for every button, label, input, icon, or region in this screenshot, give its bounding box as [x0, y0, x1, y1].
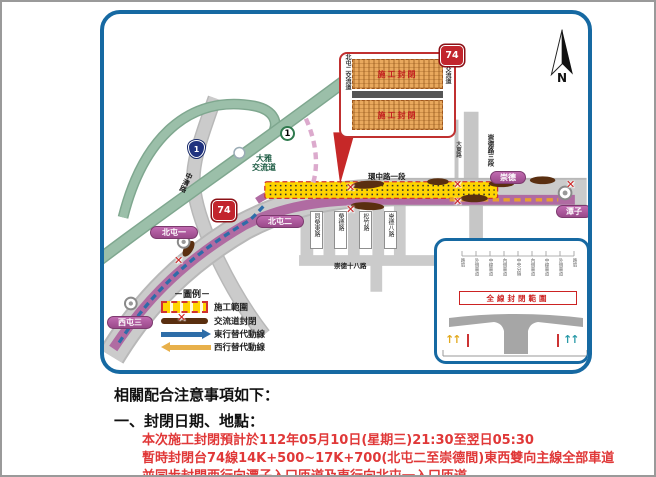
route-74-shield-icon: 74 — [212, 200, 236, 221]
daya-junction-marker — [234, 148, 245, 159]
map-canvas: N 74 北屯二交流道 崇德交流道 施工封閉 施工封閉 74 1 1 北屯一 北… — [100, 10, 592, 374]
pill-beitun1: 北屯一 — [150, 226, 198, 239]
pill-beitun2: 北屯二 — [256, 215, 304, 228]
callout-right-road-label: 崇德交流道 — [443, 54, 452, 136]
lane-label: 外側車道 — [555, 258, 565, 290]
closure-section-line: 暫時封閉台74線14K+500~17K+700(北屯二至崇德間)東西雙向主線全部… — [142, 447, 614, 466]
lane-label: 中線車道 — [485, 258, 495, 290]
closed-lane-bottom: 施工封閉 — [352, 100, 443, 130]
label-daya-interchange: 大雅 交流道 — [252, 154, 276, 172]
pill-tanzi: 潭子 — [556, 205, 592, 218]
lane-label: 中線車道 — [541, 258, 551, 290]
street-label-box: 崇德八路 — [384, 211, 397, 249]
road-label-chongde18: 崇德十八路 — [334, 260, 367, 270]
closure-x-icon: ✕ — [453, 197, 462, 207]
eastbound-surface-arrows-icon: ↑↑ — [563, 333, 577, 346]
westbound-surface-arrows-icon: ↑↑ — [445, 333, 459, 346]
legend-label: 西行替代動線 — [214, 341, 265, 353]
route-74-shield-icon: 74 — [440, 45, 464, 66]
legend-swatch-eastbound — [161, 328, 211, 340]
road-label-huanzhong: 環中路一段 — [368, 171, 406, 182]
compass-n-label: N — [557, 71, 567, 85]
lane-label: 內側車道 — [499, 258, 509, 290]
road-label-dadong: 大東路 — [454, 141, 462, 158]
closure-ramps-line: 並同步封閉西行向潭子入口匝道及東行向北屯一入口匝道。 — [142, 465, 480, 477]
provincial-route-1-shield-icon: 1 — [280, 126, 295, 141]
closed-lane-top: 施工封閉 — [352, 59, 443, 89]
lane-label: 外側車道 — [471, 258, 481, 290]
closure-x-icon: ✕ — [174, 256, 183, 266]
road-closure-notice: N 74 北屯二交流道 崇德交流道 施工封閉 施工封閉 74 1 1 北屯一 北… — [0, 0, 656, 477]
closure-date-line: 本次施工封閉預計於112年05月10日(星期三)21:30至翌日05:30 — [142, 429, 534, 448]
closure-x-icon: ✕ — [177, 313, 186, 323]
callout-left-road-label: 北屯二交流道 — [343, 54, 352, 136]
street-label-box: 榮德路 — [334, 211, 347, 249]
ramp-dashed-line — [306, 119, 316, 185]
closure-x-icon: ✕ — [346, 183, 355, 193]
closure-x-icon: ✕ — [453, 180, 462, 190]
cross-section-inset: 路肩 外側車道 中線車道 內側車道 中央分隔 內側車道 中線車道 外側車道 路肩… — [434, 238, 590, 364]
pill-chongde: 崇德 — [490, 171, 526, 184]
closure-x-icon: ✕ — [346, 205, 355, 215]
closure-boundary-tick — [557, 334, 559, 347]
callout-lanes: 施工封閉 施工封閉 — [352, 59, 443, 131]
callout-pointer — [333, 132, 355, 184]
notes-item1-title: 一、封閉日期、地點： — [114, 410, 264, 431]
lane-label: 路肩 — [569, 258, 579, 290]
street-label-box: 同榮東路 — [310, 211, 323, 249]
callout-box: 74 北屯二交流道 崇德交流道 施工封閉 施工封閉 — [339, 52, 456, 138]
full-closure-range-label: 全線封閉範圍 — [459, 291, 577, 305]
legend-label: 交流道封閉 — [214, 315, 257, 327]
closure-x-icon: ✕ — [566, 180, 575, 190]
north-arrow-icon — [551, 30, 573, 75]
street-label-box: 松竹路 — [359, 211, 372, 249]
closure-boundary-tick — [467, 334, 469, 347]
lane-label: 中央分隔 — [513, 258, 523, 290]
legend-label: 施工範圍 — [214, 301, 248, 313]
median-bar — [352, 91, 443, 98]
legend-swatch-westbound — [161, 341, 211, 353]
road-label-chongde3: 崇德路三段 — [485, 134, 495, 167]
legend-title: －圖例－ — [174, 287, 210, 300]
lane-label: 內側車道 — [527, 258, 537, 290]
lane-label: 路肩 — [457, 258, 467, 290]
notes-heading: 相關配合注意事項如下： — [114, 384, 279, 405]
pill-xitun3: 西屯三 — [107, 316, 153, 329]
legend-label: 東行替代動線 — [214, 328, 265, 340]
